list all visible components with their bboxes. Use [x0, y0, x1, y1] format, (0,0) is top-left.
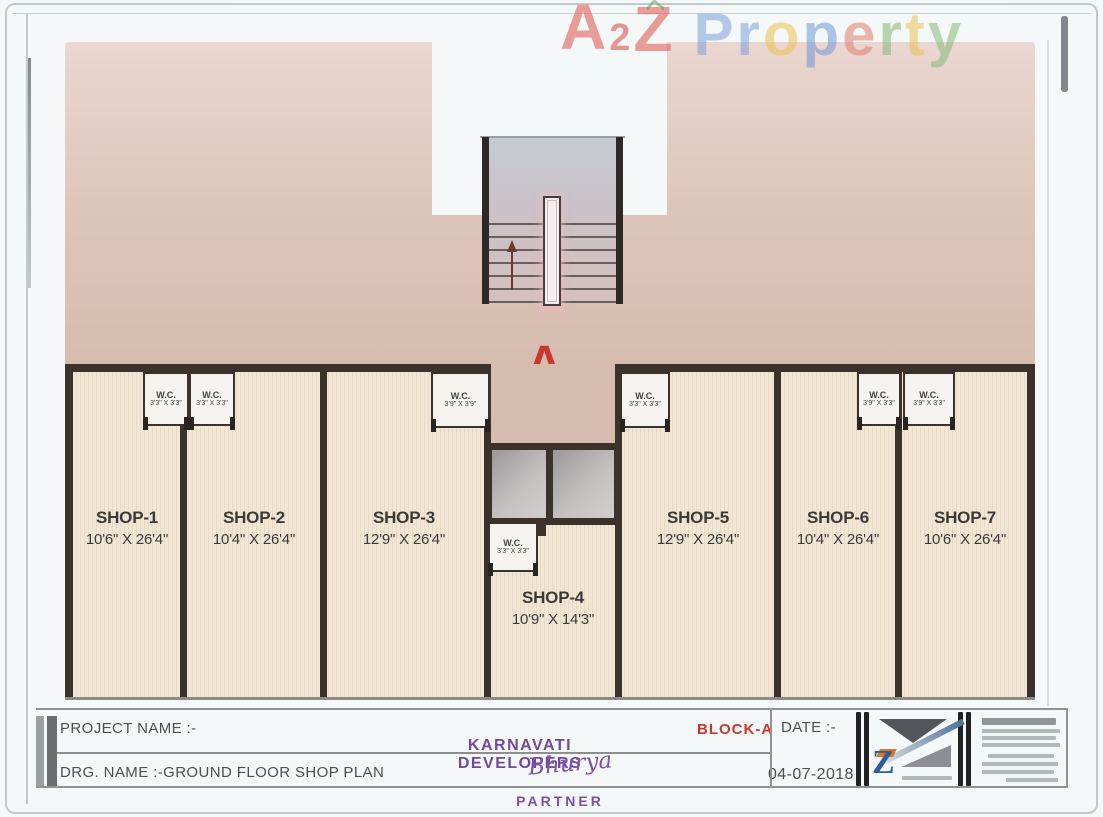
wc-label: W.C. [156, 390, 176, 400]
stair-wall-left [482, 137, 489, 304]
watermark-letter: P [693, 2, 736, 68]
wc-shop2: W.C. 3'3" X 3'3" [189, 372, 235, 426]
wc-dim: 3'3" X 3'3" [497, 548, 529, 556]
shop-1-label: SHOP-1 10'6" X 26'4" [62, 508, 192, 548]
wc-shop4: W.C. 3'3" X 3'3" [488, 522, 538, 572]
titleblock-vline-date [770, 708, 772, 788]
floor-plan-sheet: A W.C. 3'3" X 3'3" W.C. 3'3" X 3'3" W.C.… [0, 0, 1103, 817]
separator-bar [966, 712, 971, 786]
shop-2-label: SHOP-2 10'4" X 26'4" [189, 508, 319, 548]
titleblock-left-bar-dark [47, 716, 57, 786]
wall-div-2 [320, 364, 327, 698]
wc4-door-jamb [538, 522, 546, 536]
watermark-letter: o [763, 2, 803, 68]
separator-bar [856, 712, 861, 786]
a2z-property-watermark: A2ZProperty [560, 0, 964, 68]
wc-label: W.C. [202, 390, 222, 400]
sheet-right-shadow-bar [1061, 16, 1068, 92]
wall-top-right [615, 364, 1035, 372]
titleblock-mid-line [57, 752, 772, 754]
wc-dim: 3'9" X 3'9" [445, 401, 477, 409]
partner-label: PARTNER [495, 793, 625, 809]
lift-block [484, 443, 622, 525]
wc-label: W.C. [869, 390, 889, 400]
stair-arrow-line [511, 250, 513, 290]
lift-box-left [492, 450, 546, 518]
watermark-letter: r [879, 2, 905, 68]
wc-shop3: W.C. 3'9" X 3'9" [431, 372, 490, 428]
stair-wall-right [616, 137, 623, 304]
contact-info-illegible [976, 712, 1068, 786]
shop-7-label: SHOP-7 10'6" X 26'4" [900, 508, 1030, 548]
wc-label: W.C. [635, 391, 655, 401]
wc-dim: 3'3" X 3'3" [629, 401, 661, 409]
watermark-letter: p [803, 2, 843, 68]
wc-dim: 3'9" X 3'3" [913, 400, 945, 408]
block-a-title: BLOCK-A [697, 721, 773, 738]
date-label: DATE :- [781, 719, 836, 736]
wc-shop1: W.C. 3'3" X 3'3" [143, 372, 189, 426]
shopfront-line [65, 697, 1035, 700]
wc-dim: 3'3" X 3'3" [150, 400, 182, 408]
watermark-letter: A [560, 0, 609, 62]
watermark-letter: r [736, 2, 762, 68]
wc-shop6: W.C. 3'9" X 3'3" [857, 372, 901, 426]
sheet-left-shadow-bar [28, 58, 31, 288]
architect-logo: Z [872, 710, 960, 788]
lift-box-right [553, 450, 614, 518]
shop-5-label: SHOP-5 12'9" X 26'4" [633, 508, 763, 548]
wc-label: W.C. [919, 390, 939, 400]
separator-bar [864, 712, 869, 786]
wc-dim: 3'9" X 3'3" [863, 400, 895, 408]
logo-tagline-illegible [902, 776, 952, 780]
wall-top-left [65, 364, 491, 372]
sheet-right-inner-line [1047, 40, 1049, 706]
stair-center-divider [543, 196, 561, 306]
wc-shop5: W.C. 3'3" X 3'3" [620, 372, 670, 428]
watermark-letter: t [905, 2, 928, 68]
wc-label: W.C. [503, 538, 523, 548]
titleblock-left-bar-light [36, 716, 44, 786]
shop-3-label: SHOP-3 12'9" X 26'4" [339, 508, 469, 548]
watermark-letter: e [842, 2, 878, 68]
shop-6-label: SHOP-6 10'4" X 26'4" [773, 508, 903, 548]
wc-shop7: W.C. 3'9" X 3'3" [903, 372, 955, 426]
project-name-label: PROJECT NAME :- [60, 720, 197, 737]
staircase [480, 136, 625, 306]
shop-4-label: SHOP-4 10'9" X 14'3" [488, 588, 618, 628]
watermark-letter: 2 [609, 18, 633, 60]
wc-dim: 3'3" X 3'3" [196, 400, 228, 408]
date-value: 04-07-2018 [768, 766, 854, 784]
logo-z-letter: Z [872, 744, 895, 782]
drg-name-label: DRG. NAME :-GROUND FLOOR SHOP PLAN [60, 764, 384, 781]
watermark-letter: y [928, 2, 964, 68]
wc-label: W.C. [451, 391, 471, 401]
middle-corridor [491, 364, 615, 450]
